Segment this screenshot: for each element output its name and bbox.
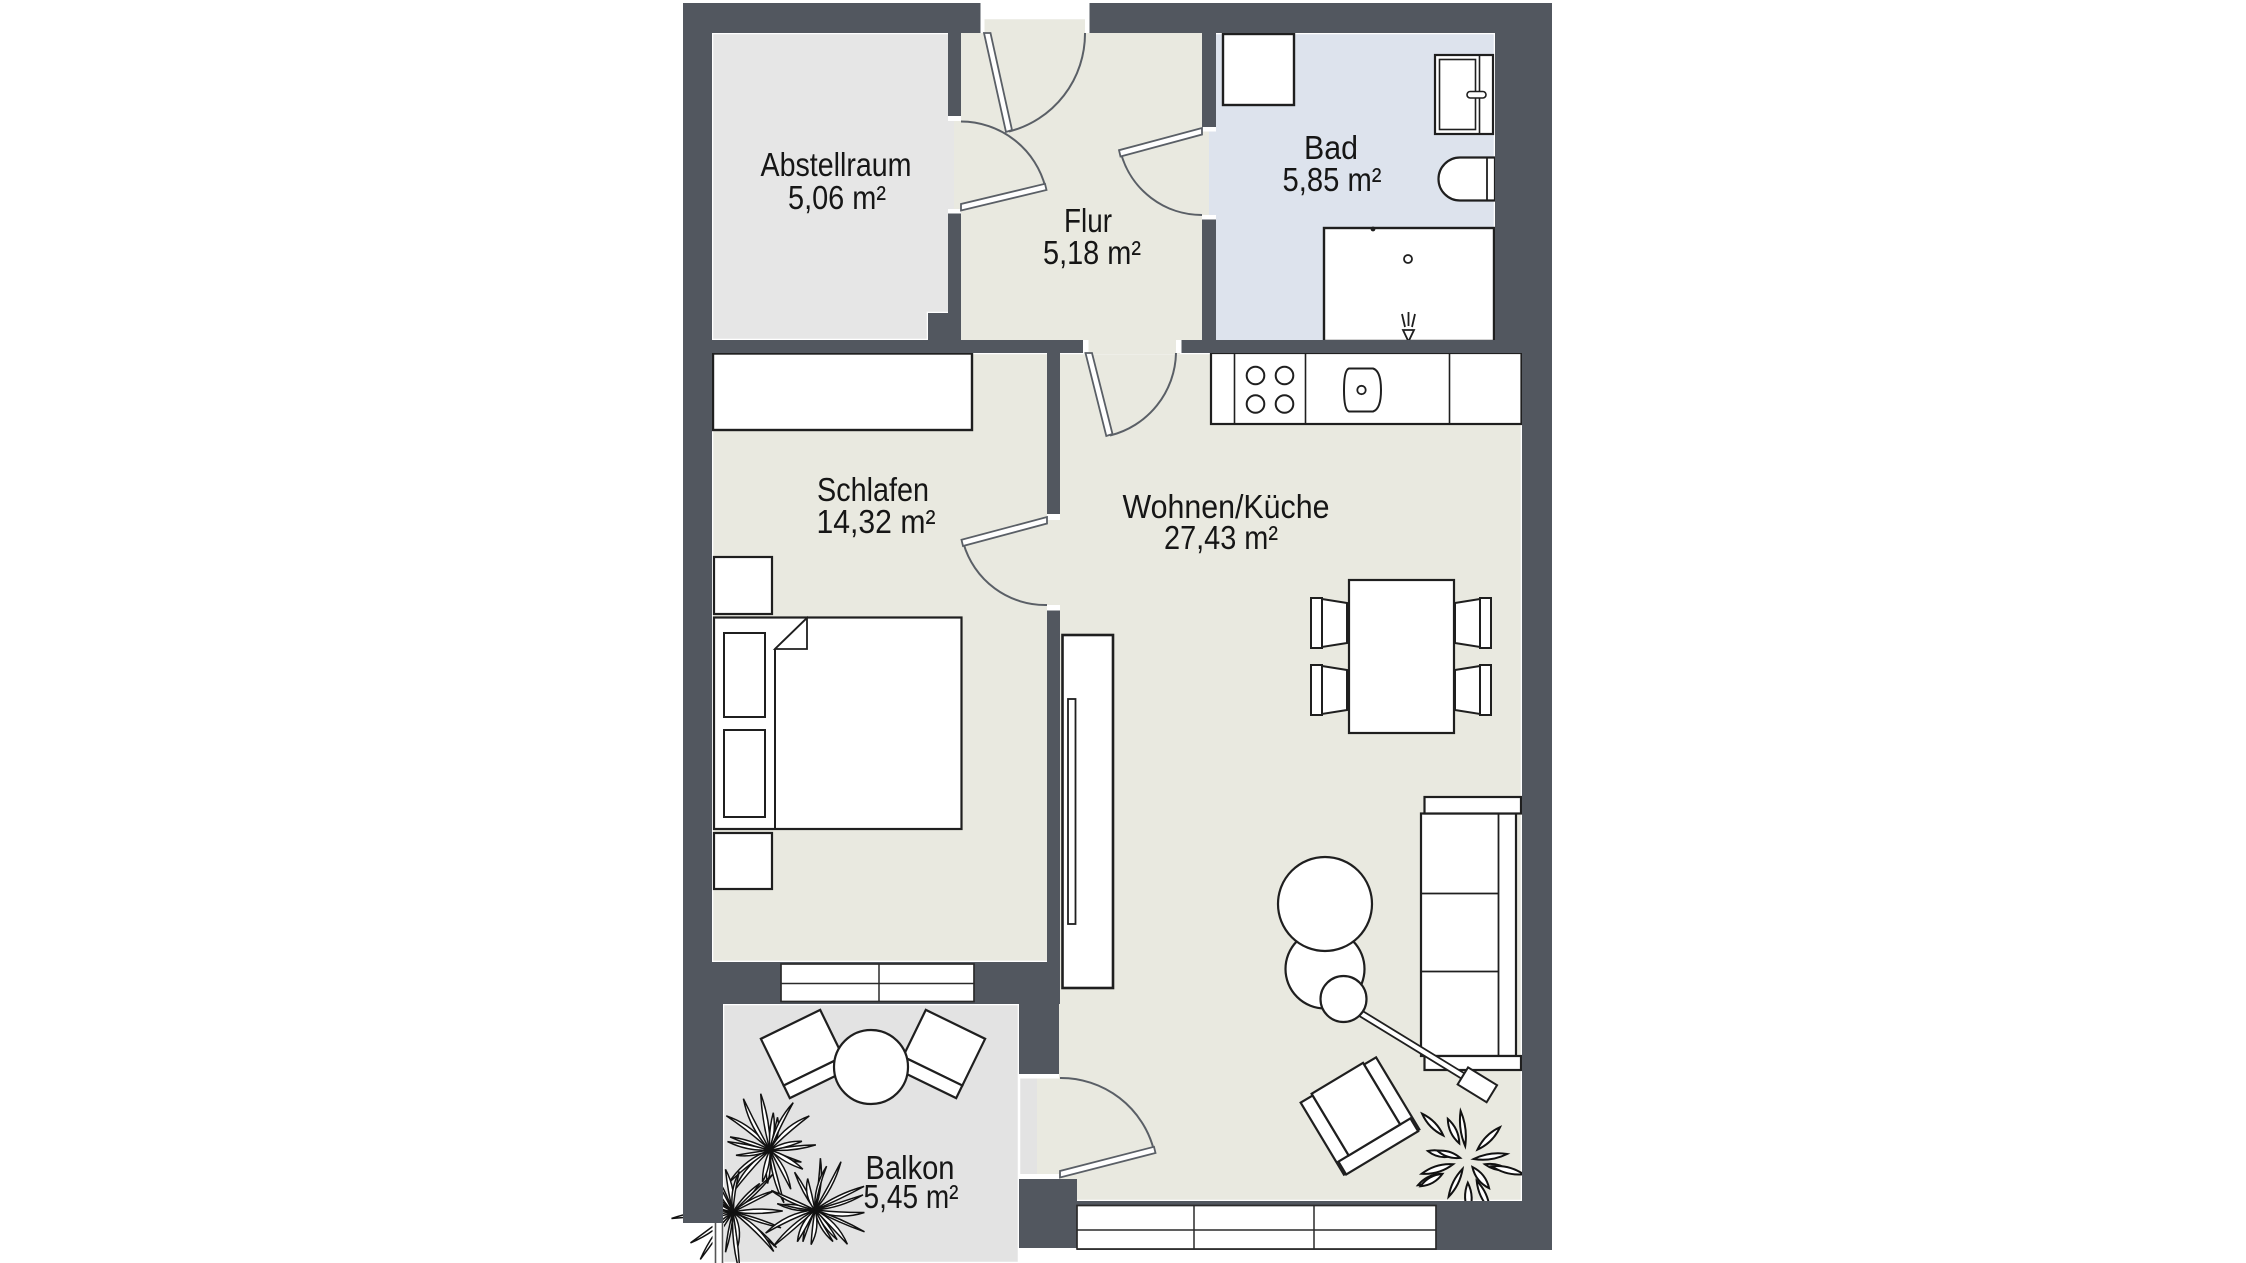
- svg-text:Abstellraum: Abstellraum: [761, 146, 912, 183]
- svg-text:5,18 m²: 5,18 m²: [1043, 234, 1141, 271]
- svg-text:5,85 m²: 5,85 m²: [1283, 161, 1382, 198]
- svg-text:5,06 m²: 5,06 m²: [788, 179, 886, 216]
- svg-text:14,32 m²: 14,32 m²: [817, 503, 936, 540]
- svg-text:5,45 m²: 5,45 m²: [864, 1178, 959, 1215]
- svg-text:27,43 m²: 27,43 m²: [1164, 519, 1278, 556]
